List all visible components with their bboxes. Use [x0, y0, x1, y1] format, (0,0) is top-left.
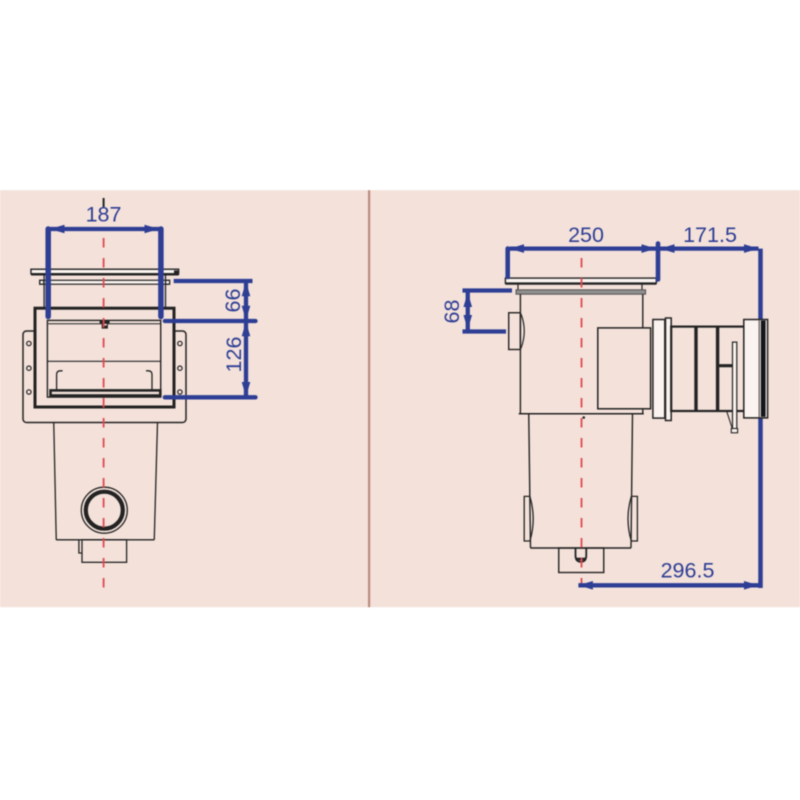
svg-text:66: 66 — [221, 289, 245, 313]
svg-text:171.5: 171.5 — [683, 223, 737, 247]
svg-text:250: 250 — [568, 223, 604, 247]
svg-text:68: 68 — [440, 300, 464, 324]
svg-text:187: 187 — [86, 203, 122, 227]
svg-text:296.5: 296.5 — [661, 559, 715, 583]
svg-text:126: 126 — [222, 337, 246, 373]
